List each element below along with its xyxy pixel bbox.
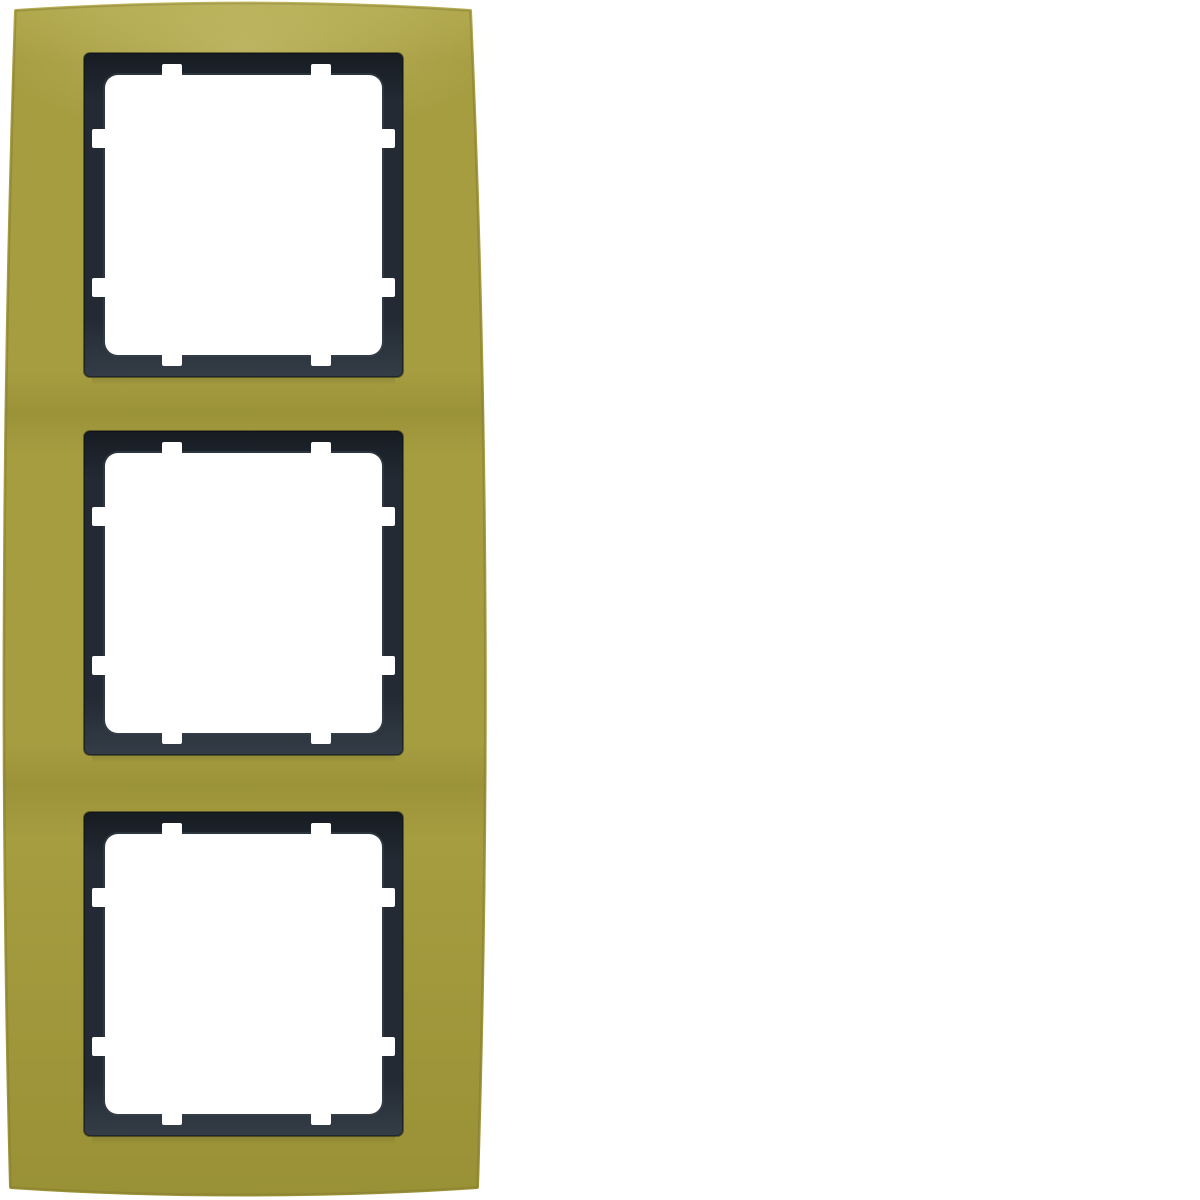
product-photo-canvas <box>0 0 1200 1200</box>
fixing-notch <box>162 442 182 460</box>
fixing-notch <box>311 1107 331 1125</box>
fixing-notch <box>92 656 110 675</box>
window-aperture <box>92 442 395 744</box>
fixing-notch <box>377 1037 395 1056</box>
fixing-notch <box>162 726 182 744</box>
fixing-notch <box>311 64 331 82</box>
fixing-notch <box>377 888 395 907</box>
fixing-notch <box>377 507 395 526</box>
fixing-notch <box>377 278 395 297</box>
fixing-notch <box>92 1037 110 1056</box>
fixing-notch <box>92 507 110 526</box>
aperture-opening <box>105 453 382 733</box>
aperture-opening <box>105 834 382 1114</box>
fixing-notch <box>377 656 395 675</box>
fixing-notch <box>92 129 110 148</box>
aperture-opening <box>105 75 382 355</box>
fixing-notch <box>311 823 331 841</box>
module-window-1 <box>84 53 403 385</box>
fixing-notch <box>162 1107 182 1125</box>
module-window-2 <box>84 431 403 763</box>
fixing-notch <box>162 823 182 841</box>
window-aperture <box>92 823 395 1125</box>
fixing-notch <box>377 129 395 148</box>
module-window-3 <box>84 812 403 1144</box>
fixing-notch <box>311 442 331 460</box>
fixing-notch <box>92 278 110 297</box>
fixing-notch <box>311 348 331 366</box>
product-photo <box>0 0 1200 1200</box>
window-aperture <box>92 64 395 366</box>
fixing-notch <box>92 888 110 907</box>
fixing-notch <box>311 726 331 744</box>
fixing-notch <box>162 348 182 366</box>
fixing-notch <box>162 64 182 82</box>
